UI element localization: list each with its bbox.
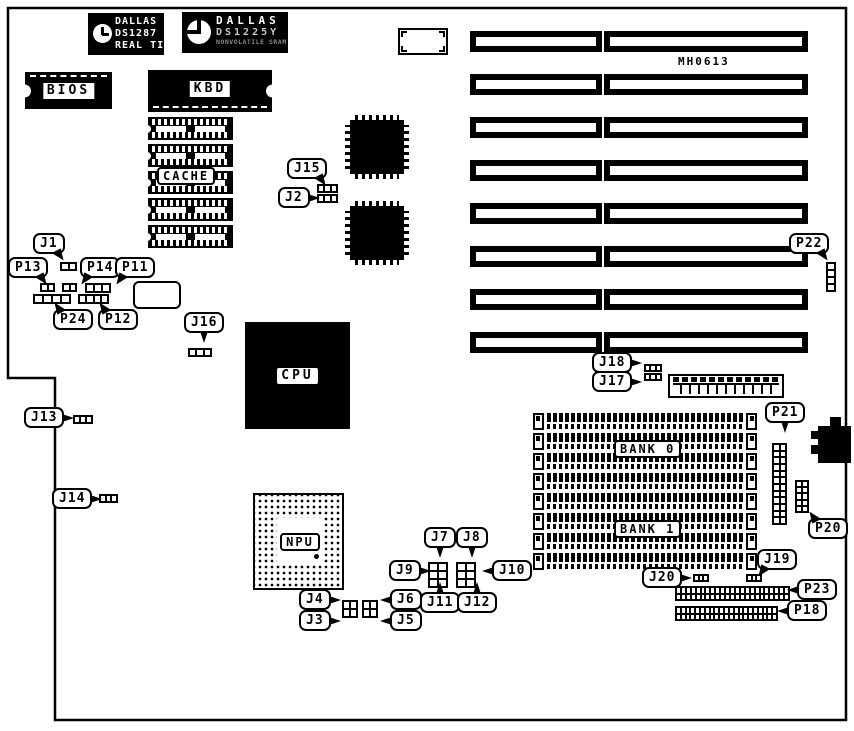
callout-tail bbox=[630, 359, 642, 367]
pin bbox=[711, 615, 714, 620]
pin bbox=[781, 505, 786, 510]
pin bbox=[756, 588, 759, 593]
pin bbox=[458, 572, 465, 578]
pin bbox=[190, 350, 195, 355]
bank1-label: BANK 1 bbox=[614, 520, 681, 538]
callout-label: J6 bbox=[397, 592, 415, 607]
pin bbox=[721, 595, 724, 600]
empty-socket bbox=[398, 28, 448, 55]
callout-p23: P23 bbox=[797, 579, 837, 600]
pin bbox=[781, 518, 786, 523]
chip-dash-line bbox=[30, 75, 107, 77]
pin bbox=[439, 572, 446, 578]
callout-label: J16 bbox=[191, 315, 217, 330]
pin bbox=[64, 285, 69, 290]
pin bbox=[803, 482, 807, 486]
pin-header-j5-j6 bbox=[362, 600, 378, 618]
keyboard-connector-tab bbox=[811, 431, 818, 439]
pin bbox=[691, 608, 694, 613]
pin bbox=[711, 595, 714, 600]
simm-detail bbox=[746, 473, 757, 490]
dip-detail bbox=[152, 132, 229, 138]
pin bbox=[344, 610, 349, 616]
simm-detail bbox=[533, 513, 544, 530]
pin bbox=[430, 564, 437, 570]
isa-slot-1-short-segment bbox=[470, 31, 602, 52]
pin bbox=[692, 595, 695, 600]
pin bbox=[682, 595, 685, 600]
pin bbox=[87, 296, 92, 302]
board-outline bbox=[0, 0, 854, 731]
qfp-body bbox=[350, 120, 404, 174]
cpu-chip: CPU bbox=[245, 322, 350, 429]
pin bbox=[730, 608, 733, 613]
pin bbox=[112, 496, 116, 501]
pin bbox=[765, 595, 768, 600]
pin bbox=[726, 588, 729, 593]
pin bbox=[774, 472, 779, 477]
pin bbox=[80, 296, 85, 302]
pin bbox=[774, 452, 779, 457]
pin bbox=[773, 615, 776, 620]
pin bbox=[781, 485, 786, 490]
pin bbox=[797, 501, 801, 505]
dip-detail bbox=[152, 240, 229, 246]
callout-p24: P24 bbox=[53, 309, 93, 330]
pin bbox=[781, 458, 786, 463]
pin bbox=[351, 602, 356, 608]
rtc-brand: DALLAS bbox=[115, 16, 178, 28]
pin bbox=[81, 417, 85, 422]
dip-detail bbox=[195, 207, 225, 213]
pin1-dot bbox=[314, 554, 319, 559]
rtc-part-number: DS1287 bbox=[115, 28, 178, 40]
pin bbox=[751, 588, 754, 593]
isa-slot-5-long-segment bbox=[604, 203, 808, 224]
clock-icon bbox=[93, 24, 112, 43]
callout-label: P24 bbox=[60, 312, 86, 327]
rtc-subtitle: REAL TIME bbox=[115, 40, 178, 52]
rtc-chip-ds1287: DALLAS DS1287 REAL TIME bbox=[88, 13, 164, 55]
pin bbox=[677, 615, 680, 620]
qfp-body bbox=[350, 206, 404, 260]
callout-label: P23 bbox=[804, 582, 830, 597]
pin bbox=[735, 615, 738, 620]
simm-detail bbox=[746, 453, 757, 470]
callout-label: J2 bbox=[285, 190, 303, 205]
pin-header-j2 bbox=[317, 194, 338, 203]
simm-detail bbox=[746, 553, 757, 570]
pin bbox=[344, 602, 349, 608]
socket-corner bbox=[439, 31, 445, 37]
pin bbox=[706, 608, 709, 613]
callout-j8: J8 bbox=[456, 527, 488, 548]
pin bbox=[774, 518, 779, 523]
pin bbox=[741, 588, 744, 593]
callout-j16: J16 bbox=[184, 312, 224, 333]
simm-detail bbox=[547, 504, 743, 509]
pin bbox=[467, 564, 474, 570]
pin bbox=[744, 615, 747, 620]
callout-label: P13 bbox=[15, 260, 41, 275]
callout-label: J20 bbox=[649, 570, 675, 585]
pin bbox=[781, 472, 786, 477]
pin bbox=[682, 588, 685, 593]
pin bbox=[439, 564, 446, 570]
callout-tail bbox=[380, 617, 392, 625]
callout-j6: J6 bbox=[390, 589, 422, 610]
pin bbox=[706, 615, 709, 620]
callout-label: J12 bbox=[464, 595, 490, 610]
qfp-pins bbox=[404, 211, 409, 255]
pin bbox=[458, 564, 465, 570]
callout-p18: P18 bbox=[787, 600, 827, 621]
isa-slot-7-short-segment bbox=[470, 289, 602, 310]
pin bbox=[687, 588, 690, 593]
isa-slot-3-long-segment bbox=[604, 117, 808, 138]
callout-label: J3 bbox=[306, 613, 324, 628]
callout-tail bbox=[436, 546, 444, 558]
pin bbox=[781, 465, 786, 470]
pin bbox=[696, 608, 699, 613]
pin bbox=[749, 608, 752, 613]
dip-detail bbox=[152, 159, 229, 165]
pin-header-j13 bbox=[73, 415, 93, 424]
keyboard-din-connector bbox=[818, 426, 851, 463]
pin bbox=[768, 608, 771, 613]
callout-tail bbox=[436, 582, 444, 594]
simm-detail bbox=[746, 533, 757, 550]
board-marking: MH0613 bbox=[678, 55, 730, 68]
isa-slot-5-short-segment bbox=[470, 203, 602, 224]
pin bbox=[761, 595, 764, 600]
pin bbox=[746, 595, 749, 600]
keyboard-connector-tab bbox=[811, 445, 818, 454]
pin bbox=[736, 588, 739, 593]
callout-label: J1 bbox=[40, 236, 58, 251]
callout-j18: J18 bbox=[592, 352, 632, 373]
simm-detail bbox=[533, 533, 544, 550]
callout-label: P14 bbox=[87, 260, 113, 275]
callout-label: J8 bbox=[463, 530, 481, 545]
pin bbox=[651, 375, 654, 379]
pin bbox=[706, 595, 709, 600]
callout-label: P12 bbox=[105, 312, 131, 327]
pin bbox=[774, 505, 779, 510]
callout-label: J5 bbox=[397, 613, 415, 628]
pin bbox=[781, 492, 786, 497]
pin bbox=[697, 588, 700, 593]
pin bbox=[62, 296, 69, 302]
dip-detail bbox=[152, 186, 229, 192]
pin bbox=[803, 507, 807, 511]
pin-header-j20 bbox=[693, 574, 709, 582]
qfp-pins bbox=[355, 260, 399, 265]
pin bbox=[720, 615, 723, 620]
pin bbox=[103, 285, 109, 291]
pin bbox=[364, 602, 369, 608]
pin bbox=[711, 608, 714, 613]
pin bbox=[95, 296, 100, 302]
npu-center: NPU bbox=[277, 518, 323, 565]
pin bbox=[803, 494, 807, 498]
npu-label: NPU bbox=[280, 533, 320, 551]
dip-detail bbox=[152, 146, 229, 152]
isa-slot-4-long-segment bbox=[604, 160, 808, 181]
dip-detail bbox=[156, 207, 186, 213]
dip-detail bbox=[147, 233, 151, 241]
pin bbox=[731, 595, 734, 600]
pin bbox=[774, 498, 779, 503]
pin bbox=[716, 595, 719, 600]
pin bbox=[351, 610, 356, 616]
callout-label: J15 bbox=[294, 161, 320, 176]
simm-detail bbox=[547, 544, 743, 549]
callout-tail bbox=[777, 607, 789, 615]
pin bbox=[467, 572, 474, 578]
npu-socket: NPU bbox=[253, 493, 344, 590]
callout-j1: J1 bbox=[33, 233, 65, 254]
pin bbox=[71, 285, 76, 290]
pin bbox=[774, 512, 779, 517]
pin-header-j1 bbox=[60, 262, 77, 271]
pin bbox=[721, 588, 724, 593]
simm-detail bbox=[547, 424, 743, 429]
simm-detail bbox=[533, 413, 544, 430]
pin bbox=[696, 615, 699, 620]
pin bbox=[364, 610, 369, 616]
simm-detail bbox=[533, 433, 544, 450]
chip-notch bbox=[24, 84, 31, 97]
pin bbox=[332, 186, 336, 191]
pin bbox=[677, 608, 680, 613]
pin bbox=[62, 264, 68, 269]
pin bbox=[725, 608, 728, 613]
pin bbox=[774, 492, 779, 497]
pin-header-p20 bbox=[795, 480, 809, 513]
isa-slot-2-short-segment bbox=[470, 74, 602, 95]
callout-j14: J14 bbox=[52, 488, 92, 509]
callout-j12: J12 bbox=[457, 592, 497, 613]
simm-detail bbox=[746, 413, 757, 430]
pin bbox=[740, 615, 743, 620]
callout-tail bbox=[419, 567, 431, 575]
pin bbox=[748, 576, 751, 580]
qfp-pins bbox=[404, 125, 409, 169]
pin bbox=[692, 588, 695, 593]
pin bbox=[651, 366, 654, 370]
pin bbox=[765, 588, 768, 593]
pin bbox=[759, 615, 762, 620]
pin bbox=[702, 595, 705, 600]
callout-j17: J17 bbox=[592, 371, 632, 392]
bios-label: BIOS bbox=[43, 83, 94, 99]
callout-tail bbox=[482, 567, 494, 575]
dip-detail bbox=[152, 119, 229, 125]
pin bbox=[768, 615, 771, 620]
pin bbox=[781, 512, 786, 517]
callout-tail bbox=[329, 617, 341, 625]
simm-detail bbox=[746, 493, 757, 510]
callout-label: J19 bbox=[764, 552, 790, 567]
simm-detail bbox=[533, 553, 544, 570]
pin bbox=[770, 588, 773, 593]
pin bbox=[759, 608, 762, 613]
pin bbox=[716, 588, 719, 593]
pin bbox=[774, 478, 779, 483]
pin bbox=[95, 285, 101, 291]
callout-label: J7 bbox=[431, 530, 449, 545]
pin bbox=[774, 465, 779, 470]
callout-label: P18 bbox=[794, 603, 820, 618]
callout-j7: J7 bbox=[424, 527, 456, 548]
callout-tail bbox=[62, 414, 74, 422]
pin bbox=[720, 608, 723, 613]
callout-j4: J4 bbox=[299, 589, 331, 610]
callout-j2: J2 bbox=[278, 187, 310, 208]
qfp-chip-lower bbox=[345, 201, 409, 265]
callout-label: J17 bbox=[599, 374, 625, 389]
chip-notch bbox=[266, 85, 273, 98]
pin bbox=[704, 576, 707, 580]
dip-detail bbox=[152, 227, 229, 233]
isa-slot-6-long-segment bbox=[604, 246, 808, 267]
pin bbox=[35, 296, 42, 302]
pin bbox=[332, 196, 336, 201]
pin bbox=[687, 595, 690, 600]
pin bbox=[746, 588, 749, 593]
callout-j10: J10 bbox=[492, 560, 532, 581]
callout-label: P11 bbox=[122, 260, 148, 275]
pin bbox=[781, 445, 786, 450]
pin bbox=[749, 615, 752, 620]
callout-label: J13 bbox=[31, 410, 57, 425]
pin bbox=[751, 595, 754, 600]
pin-header-j16 bbox=[188, 348, 212, 357]
chip-dash-line bbox=[153, 106, 267, 108]
simm-detail bbox=[547, 413, 743, 422]
pin bbox=[325, 186, 329, 191]
callout-j5: J5 bbox=[390, 610, 422, 631]
simm-detail bbox=[547, 484, 743, 489]
simm-detail bbox=[746, 513, 757, 530]
pin bbox=[75, 417, 79, 422]
dip-detail bbox=[195, 126, 225, 132]
pin bbox=[726, 595, 729, 600]
pin bbox=[691, 615, 694, 620]
simm-detail bbox=[547, 493, 743, 502]
callout-tail bbox=[200, 331, 208, 343]
pin bbox=[725, 615, 728, 620]
isa-slot-8-long-segment bbox=[604, 332, 808, 353]
pin bbox=[754, 608, 757, 613]
qfp-pins bbox=[355, 174, 399, 179]
pin bbox=[87, 417, 91, 422]
dip-detail bbox=[147, 125, 151, 133]
callout-tail bbox=[380, 596, 392, 604]
pin bbox=[781, 498, 786, 503]
power-connector bbox=[668, 374, 784, 398]
callout-label: J4 bbox=[306, 592, 324, 607]
pin bbox=[797, 488, 801, 492]
pin bbox=[711, 588, 714, 593]
pin bbox=[687, 615, 690, 620]
callout-tail bbox=[90, 495, 102, 503]
pin bbox=[701, 615, 704, 620]
dallas-logo-icon bbox=[187, 20, 211, 44]
rtc-chip-text: DALLAS DS1287 REAL TIME bbox=[115, 16, 178, 52]
pin bbox=[702, 588, 705, 593]
simm-detail bbox=[533, 453, 544, 470]
pin bbox=[695, 576, 698, 580]
pin bbox=[70, 264, 76, 269]
isa-slot-1-long-segment bbox=[604, 31, 808, 52]
callout-tail bbox=[680, 574, 692, 582]
dip-detail bbox=[156, 234, 186, 240]
keyboard-connector-tab bbox=[830, 417, 841, 426]
callout-j13: J13 bbox=[24, 407, 64, 428]
simm-socket-4 bbox=[533, 473, 757, 490]
pin bbox=[682, 615, 685, 620]
power-connector-pins bbox=[673, 383, 779, 394]
pin bbox=[781, 452, 786, 457]
pin bbox=[785, 595, 788, 600]
pin bbox=[715, 608, 718, 613]
callout-j20: J20 bbox=[642, 567, 682, 588]
isa-slot-6-short-segment bbox=[470, 246, 602, 267]
pin bbox=[780, 595, 783, 600]
pin bbox=[107, 496, 111, 501]
pin bbox=[797, 482, 801, 486]
cache-socket-1 bbox=[148, 117, 233, 140]
callout-j3: J3 bbox=[299, 610, 331, 631]
pin bbox=[828, 278, 834, 283]
dip-detail bbox=[156, 153, 186, 159]
pin bbox=[205, 350, 210, 355]
pin-header-p14 bbox=[62, 283, 77, 292]
callout-j11: J11 bbox=[420, 592, 460, 613]
pin-header-j3-j4 bbox=[342, 600, 358, 618]
simm-detail bbox=[533, 493, 544, 510]
cache-socket-5 bbox=[148, 225, 233, 248]
pin bbox=[657, 375, 660, 379]
pin bbox=[770, 595, 773, 600]
callout-p13: P13 bbox=[8, 257, 48, 278]
pin bbox=[700, 576, 703, 580]
callout-label: J11 bbox=[427, 595, 453, 610]
kbd-label: KBD bbox=[190, 81, 230, 97]
pin bbox=[803, 501, 807, 505]
dip-detail bbox=[147, 206, 151, 214]
pin bbox=[325, 196, 329, 201]
pin bbox=[775, 588, 778, 593]
sram-chip-ds1225y: DALLAS DS1225Y NONVOLATILE SRAM bbox=[182, 12, 288, 53]
dip-detail bbox=[152, 200, 229, 206]
pin bbox=[803, 488, 807, 492]
pin bbox=[736, 595, 739, 600]
dip-detail bbox=[195, 153, 225, 159]
motherboard-diagram: DALLAS DS1287 REAL TIME DALLAS DS1225Y N… bbox=[0, 0, 854, 731]
callout-p21: P21 bbox=[765, 402, 805, 423]
pin bbox=[740, 608, 743, 613]
pin bbox=[797, 507, 801, 511]
pin bbox=[774, 485, 779, 490]
pin bbox=[682, 608, 685, 613]
pin bbox=[646, 375, 649, 379]
pin-header-p22 bbox=[826, 262, 836, 292]
oscillator-can bbox=[133, 281, 181, 309]
pin bbox=[828, 264, 834, 269]
